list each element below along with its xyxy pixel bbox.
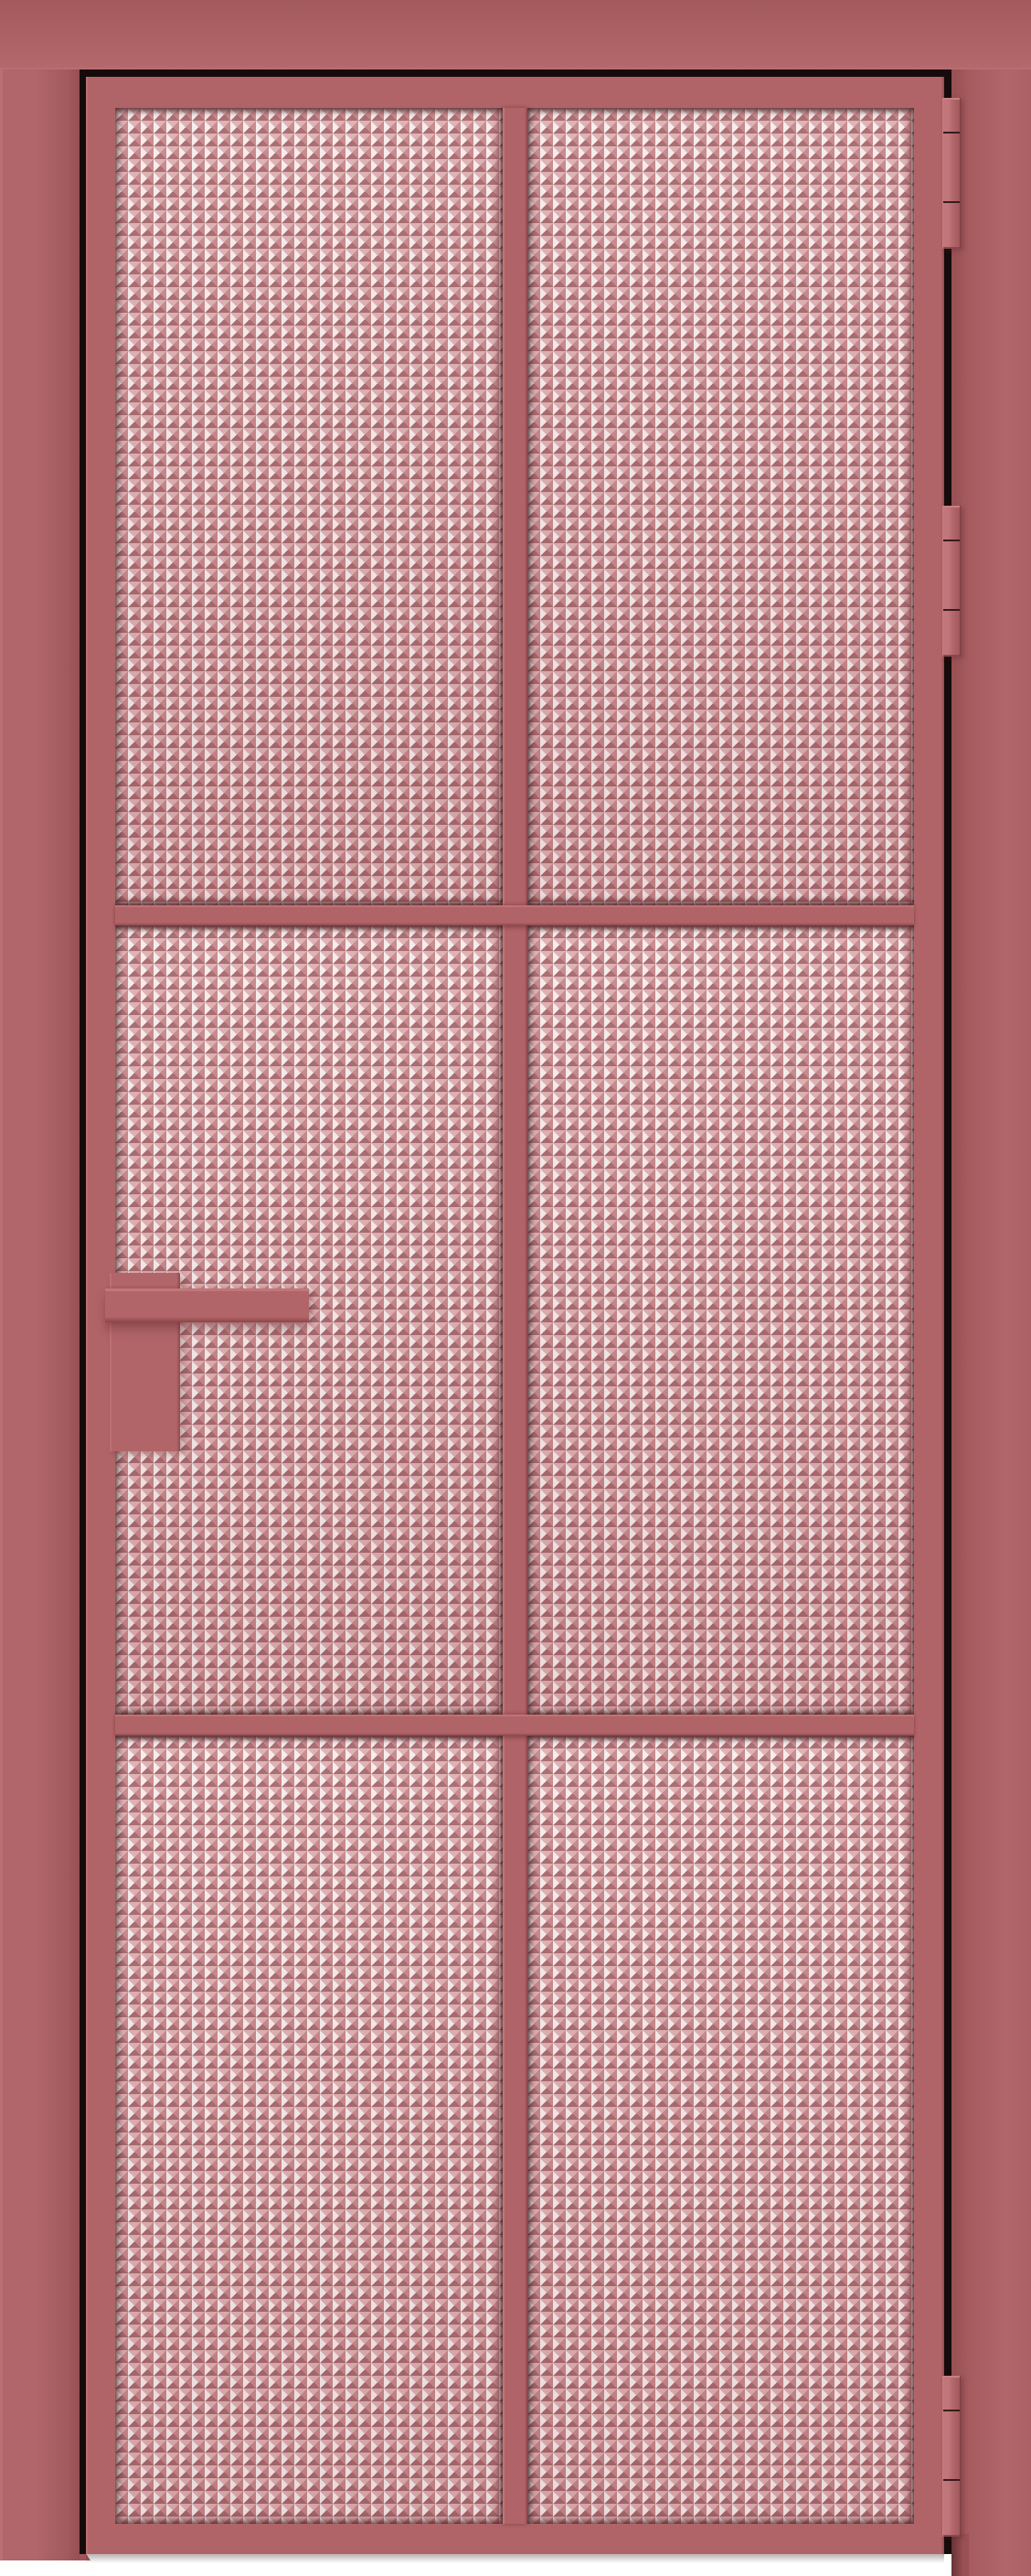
center-mullion <box>503 108 527 2524</box>
hinge-knuckle-bottom <box>943 2481 960 2537</box>
hinge-knuckle-top <box>943 98 960 134</box>
hinge-knuckle-middle <box>943 134 960 203</box>
hinge-top <box>942 98 961 249</box>
door-product-photo <box>0 0 1031 2576</box>
hinge-middle <box>942 506 961 657</box>
frame-floor-notch <box>951 2534 969 2576</box>
glass-panel-middle-right <box>527 925 914 1715</box>
glass-panel-top-left <box>115 108 503 905</box>
lower-glazing-bar <box>115 1715 914 1736</box>
door-frame-left-jamb <box>0 0 80 2560</box>
glass-panel-bottom-right <box>527 1736 914 2524</box>
glass-panel-bottom-left <box>115 1736 503 2524</box>
hinge-knuckle-middle <box>943 2411 960 2481</box>
door-leaf <box>86 77 944 2554</box>
door-handle-lever <box>105 1288 309 1322</box>
upper-glazing-bar <box>115 905 914 925</box>
hinge-knuckle-bottom <box>943 611 960 657</box>
floor-shadow <box>86 2554 944 2563</box>
hinge-knuckle-middle <box>943 541 960 611</box>
door-frame-head <box>0 0 1031 69</box>
door-frame-right-jamb <box>951 0 1031 2576</box>
hinge-knuckle-bottom <box>943 203 960 249</box>
hinge-knuckle-top <box>943 506 960 541</box>
hinge-knuckle-top <box>943 2376 960 2411</box>
hinge-bottom <box>942 2376 961 2537</box>
glass-panel-top-right <box>527 108 914 905</box>
